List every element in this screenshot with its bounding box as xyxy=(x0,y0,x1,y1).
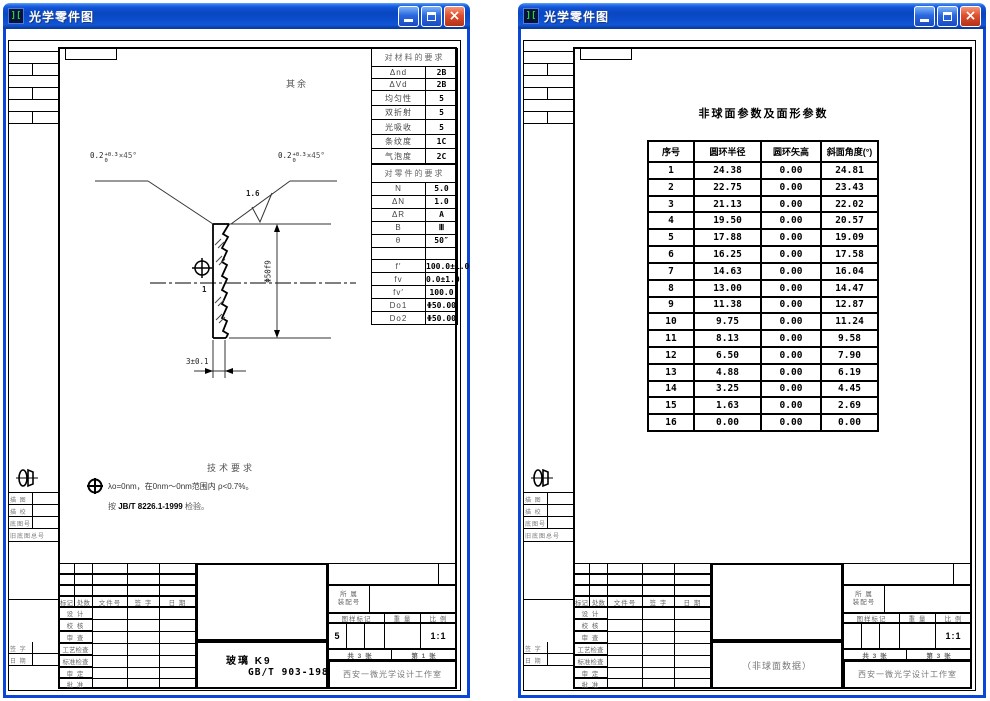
table-title: 对材料的要求 xyxy=(372,49,458,67)
table-cell: 14.63 xyxy=(694,263,761,280)
projection-symbol-icon xyxy=(14,465,40,491)
glass-type: 玻璃 K9 xyxy=(226,652,272,667)
table-row: 911.380.0012.87 xyxy=(648,297,878,314)
tb-row-label: 工艺检查 xyxy=(573,643,608,655)
table-cell: 0.00 xyxy=(761,313,821,330)
table-cell: 5 xyxy=(426,120,458,135)
table-cell: 5 xyxy=(426,91,458,106)
fresnel-serrated-edge xyxy=(222,224,229,338)
tb-header: 日 期 xyxy=(159,596,196,607)
close-button[interactable]: × xyxy=(444,6,465,27)
mark-header: 图样标记 xyxy=(843,613,900,623)
table-cell: 100.0±1.0 xyxy=(426,260,458,273)
table-cell: 光吸收 xyxy=(372,120,426,135)
table-cell: 0.00 xyxy=(761,229,821,246)
part-requirements-table: 对零件的要求 N5.0ΔN1.0ΔRABⅢθ50″ f′100.0±1.0fv0… xyxy=(371,164,458,325)
table-cell: 0.00 xyxy=(761,414,821,431)
tb-header: 日 期 xyxy=(674,596,711,607)
window-controls: × xyxy=(914,6,981,27)
table-cell xyxy=(426,247,458,260)
table-cell: Ⅲ xyxy=(426,221,458,234)
frame-corner-cell xyxy=(65,47,117,60)
table-cell: 13 xyxy=(648,364,694,381)
tb-header: 文件号 xyxy=(92,596,128,607)
tb-header: 标记 xyxy=(58,596,75,607)
tb-header: 处数 xyxy=(74,596,93,607)
margin-label: 日 期 xyxy=(525,656,542,665)
table-cell: 4 xyxy=(648,212,694,229)
table-row: Δnd2B xyxy=(372,67,458,79)
lens-section-drawing xyxy=(66,149,366,419)
surface-finish-icon xyxy=(252,193,272,222)
table-cell: 0.0±1.0 xyxy=(426,273,458,286)
close-icon: × xyxy=(965,9,977,23)
table-cell: 5 xyxy=(648,229,694,246)
table-cell: 12.87 xyxy=(821,297,878,314)
tb-row-label: 审 定 xyxy=(573,667,608,678)
table-cell: 0.00 xyxy=(821,414,878,431)
table-cell: 2C xyxy=(426,149,458,164)
table-row: N5.0 xyxy=(372,183,458,196)
inspection-standard: JB/T 8226.1-1999 xyxy=(118,502,183,511)
table-cell: 0.00 xyxy=(761,280,821,297)
table-cell: Δnd xyxy=(372,67,426,79)
margin-label: 描 图 xyxy=(10,495,27,504)
table-cell: 2B xyxy=(426,79,458,91)
window-optical-drawing: ][ 光学零件图 × xyxy=(3,3,470,698)
maximize-icon xyxy=(427,12,436,21)
position-symbol-icon xyxy=(86,477,104,495)
table-cell: 0.00 xyxy=(761,263,821,280)
table-cell: 1 xyxy=(648,162,694,179)
table-cell: fv xyxy=(372,273,426,286)
table-row: Do2Φ50.00 xyxy=(372,312,458,325)
table-cell: 19.50 xyxy=(694,212,761,229)
table-cell: A xyxy=(426,208,458,221)
data-note-cell: （非球面数据） xyxy=(711,641,843,689)
table-row: 109.750.0011.24 xyxy=(648,313,878,330)
table-cell: B xyxy=(372,221,426,234)
table-cell: 12 xyxy=(648,347,694,364)
table-row: 气泡度2C xyxy=(372,149,458,164)
tb-row-label: 设 计 xyxy=(573,607,608,619)
table-cell: 0.00 xyxy=(761,246,821,263)
table-cell: 0.00 xyxy=(761,179,821,196)
table-row: 151.630.002.69 xyxy=(648,397,878,414)
binding-margin: 描 图 描 校 底图号 旧底图总号 签 字 日 期 xyxy=(523,40,573,691)
tech-requirements-line1: λo=0nm，在0nm～0nm范围内 ρ<0.7%。 xyxy=(108,481,254,492)
drawing-sheet-1: 描 图 描 校 底图号 旧底图总号 签 字 日 期 其余 0.2+0.30×45… xyxy=(6,29,467,695)
company-cell: 西安一微光学设计工作室 xyxy=(328,660,457,689)
weight-header: 重 量 xyxy=(899,613,936,623)
mark-value xyxy=(843,623,862,649)
table-row: 813.000.0014.47 xyxy=(648,280,878,297)
tb-header: 处数 xyxy=(589,596,608,607)
tb-row-label: 标准检查 xyxy=(573,655,608,667)
table-cell: 16.04 xyxy=(821,263,878,280)
table-cell: 0.00 xyxy=(761,196,821,213)
margin-label: 旧底图总号 xyxy=(525,531,560,540)
titlebar[interactable]: ][ 光学零件图 × xyxy=(3,3,470,29)
scale-value: 1:1 xyxy=(420,623,457,649)
table-cell: 双折射 xyxy=(372,105,426,120)
table-cell: 24.81 xyxy=(821,162,878,179)
material-cell: 玻璃 K9 GB/T 903-1987 xyxy=(196,641,328,689)
tb-row-label: 校 核 xyxy=(58,619,93,631)
table-cell: 23.43 xyxy=(821,179,878,196)
close-icon: × xyxy=(449,9,461,23)
mark-value: 5 xyxy=(328,623,347,649)
table-cell: 22.75 xyxy=(694,179,761,196)
scale-value: 1:1 xyxy=(935,623,972,649)
table-row: 419.500.0020.57 xyxy=(648,212,878,229)
scale-header: 比 例 xyxy=(935,613,972,623)
weight-header: 重 量 xyxy=(384,613,421,623)
datum-label: 1 xyxy=(202,285,207,294)
tech-requirements-title: 技术要求 xyxy=(156,461,306,474)
aspheric-parameter-table: 序号 圆环半径 圆环矢高 斜面角度(°) 124.380.0024.81222.… xyxy=(647,140,879,432)
table-row: 均匀性5 xyxy=(372,91,458,106)
tb-header: 标记 xyxy=(573,596,590,607)
column-header: 斜面角度(°) xyxy=(821,141,878,162)
table-cell: 16.25 xyxy=(694,246,761,263)
table-cell: 11.38 xyxy=(694,297,761,314)
margin-label: 描 校 xyxy=(10,507,27,516)
table-row: 134.880.006.19 xyxy=(648,364,878,381)
table-cell: 4.88 xyxy=(694,364,761,381)
table-cell: 11 xyxy=(648,330,694,347)
table-cell: 13.00 xyxy=(694,280,761,297)
table-cell: 2.69 xyxy=(821,397,878,414)
table-header-row: 序号 圆环半径 圆环矢高 斜面角度(°) xyxy=(648,141,878,162)
window-title: 光学零件图 xyxy=(29,8,94,25)
projection-symbol-icon xyxy=(529,465,555,491)
table-cell: ΔVd xyxy=(372,79,426,91)
table-row: ΔVd2B xyxy=(372,79,458,91)
table-cell: 24.38 xyxy=(694,162,761,179)
table-cell: 6.19 xyxy=(821,364,878,381)
column-header: 圆环矢高 xyxy=(761,141,821,162)
minimize-icon xyxy=(920,19,929,22)
margin-label: 底图号 xyxy=(525,519,546,528)
table-cell: 0.00 xyxy=(761,330,821,347)
tb-header: 签 字 xyxy=(642,596,675,607)
tech-requirements-line2: 按 JB/T 8226.1-1999 检验。 xyxy=(108,501,209,512)
table-cell: 0.00 xyxy=(761,381,821,398)
table-row: 光吸收5 xyxy=(372,120,458,135)
material-requirements-table: 对材料的要求 Δnd2BΔVd2B均匀性5双折射5光吸收5条纹度1C气泡度2C xyxy=(371,48,458,164)
table-row: 143.250.004.45 xyxy=(648,381,878,398)
drawing-canvas[interactable]: 描 图 描 校 底图号 旧底图总号 签 字 日 期 非球面参数及面形参数 序号 … xyxy=(518,29,986,698)
table-cell: 9.75 xyxy=(694,313,761,330)
minimize-icon xyxy=(404,19,413,22)
table-cell: 均匀性 xyxy=(372,91,426,106)
drawing-sheet-3: 描 图 描 校 底图号 旧底图总号 签 字 日 期 非球面参数及面形参数 序号 … xyxy=(521,29,982,695)
tb-row-label: 工艺检查 xyxy=(58,643,93,655)
table-cell: 17.88 xyxy=(694,229,761,246)
table-cell: ΔN xyxy=(372,195,426,208)
table-row: 126.500.007.90 xyxy=(648,347,878,364)
table-row: 124.380.0024.81 xyxy=(648,162,878,179)
table-row: 222.750.0023.43 xyxy=(648,179,878,196)
table-cell: 1.63 xyxy=(694,397,761,414)
table-cell: 50″ xyxy=(426,234,458,247)
margin-label: 底图号 xyxy=(10,519,31,528)
table-cell: 0.00 xyxy=(761,364,821,381)
tb-row-label: 批 准 xyxy=(573,678,608,689)
table-cell: 4.45 xyxy=(821,381,878,398)
table-row: 双折射5 xyxy=(372,105,458,120)
margin-label: 日 期 xyxy=(10,656,27,665)
sheet-total: 共 3 张 xyxy=(328,649,392,660)
table-cell: 6.50 xyxy=(694,347,761,364)
table-cell: Φ50.00 xyxy=(426,299,458,312)
titlebar[interactable]: ][ 光学零件图 × xyxy=(518,3,986,29)
table-cell: 1C xyxy=(426,134,458,149)
table-row: 118.130.009.58 xyxy=(648,330,878,347)
table-cell: Do1 xyxy=(372,299,426,312)
margin-label: 签 字 xyxy=(525,644,542,653)
table-cell: 21.13 xyxy=(694,196,761,213)
table-row: ΔRA xyxy=(372,208,458,221)
maximize-button[interactable] xyxy=(937,6,958,27)
table-cell: 1.0 xyxy=(426,195,458,208)
margin-label: 旧底图总号 xyxy=(10,531,45,540)
table-cell: 9 xyxy=(648,297,694,314)
tb-row-label: 设 计 xyxy=(58,607,93,619)
maximize-button[interactable] xyxy=(421,6,442,27)
table-cell: 8 xyxy=(648,280,694,297)
binding-margin: 描 图 描 校 底图号 旧底图总号 签 字 日 期 xyxy=(8,40,58,691)
table-cell: 0.00 xyxy=(761,347,821,364)
table-cell: Do2 xyxy=(372,312,426,325)
table-row: Do1Φ50.00 xyxy=(372,299,458,312)
diameter-dimension: Φ50f9 xyxy=(264,250,273,294)
aspheric-table-title: 非球面参数及面形参数 xyxy=(641,105,886,121)
table-cell: N xyxy=(372,183,426,196)
table-cell: 条纹度 xyxy=(372,134,426,149)
table-cell: 0.00 xyxy=(761,212,821,229)
table-row xyxy=(372,247,458,260)
scale-header: 比 例 xyxy=(420,613,457,623)
maximize-icon xyxy=(943,12,952,21)
sheet-number: 第 1 张 xyxy=(391,649,457,660)
table-row: f′100.0±1.0 xyxy=(372,260,458,273)
column-header: 圆环半径 xyxy=(694,141,761,162)
table-cell: 0.00 xyxy=(761,297,821,314)
tb-row-label: 审 查 xyxy=(58,631,93,643)
table-cell: 6 xyxy=(648,246,694,263)
table-cell: ΔR xyxy=(372,208,426,221)
table-row: 714.630.0016.04 xyxy=(648,263,878,280)
table-cell: 7 xyxy=(648,263,694,280)
table-cell: 5.0 xyxy=(426,183,458,196)
title-block: 标记 处数 文件号 签 字 日 期 设 计 校 核 审 查 工艺检查 标准检查 … xyxy=(58,563,457,689)
mark-header: 图样标记 xyxy=(328,613,385,623)
app-icon[interactable]: ][ xyxy=(523,8,539,24)
assembly-cell: 所 属装配号 xyxy=(328,585,370,613)
glass-standard: GB/T 903-1987 xyxy=(248,667,328,678)
table-cell: 5 xyxy=(426,105,458,120)
frame-corner-cell xyxy=(580,47,632,60)
tb-row-label: 校 核 xyxy=(573,619,608,631)
table-row: BⅢ xyxy=(372,221,458,234)
table-row: fv0.0±1.0 xyxy=(372,273,458,286)
minimize-button[interactable] xyxy=(914,6,935,27)
window-aspheric-data: ][ 光学零件图 × xyxy=(518,3,986,698)
tb-header: 文件号 xyxy=(607,596,643,607)
table-title: 对零件的要求 xyxy=(372,165,458,183)
table-cell: θ xyxy=(372,234,426,247)
tb-row-label: 审 定 xyxy=(58,667,93,678)
drawing-canvas[interactable]: 描 图 描 校 底图号 旧底图总号 签 字 日 期 其余 0.2+0.30×45… xyxy=(3,29,470,698)
table-cell: fv′ xyxy=(372,286,426,299)
table-cell: 7.90 xyxy=(821,347,878,364)
table-cell: 8.13 xyxy=(694,330,761,347)
thickness-dimension: 3±0.1 xyxy=(186,357,209,366)
app-icon[interactable]: ][ xyxy=(8,8,24,24)
table-cell: 2 xyxy=(648,179,694,196)
table-cell: Φ50.00 xyxy=(426,312,458,325)
table-row: ΔN1.0 xyxy=(372,195,458,208)
table-row: 160.000.000.00 xyxy=(648,414,878,431)
minimize-button[interactable] xyxy=(398,6,419,27)
table-cell: 17.58 xyxy=(821,246,878,263)
table-cell: 9.58 xyxy=(821,330,878,347)
title-block: 标记 处数 文件号 签 字 日 期 设 计 校 核 审 查 工艺检查 标准检查 … xyxy=(573,563,972,689)
table-cell: 10 xyxy=(648,313,694,330)
tb-row-label: 审 查 xyxy=(573,631,608,643)
close-button[interactable]: × xyxy=(960,6,981,27)
table-cell: 15 xyxy=(648,397,694,414)
table-cell xyxy=(372,247,426,260)
table-cell: 19.09 xyxy=(821,229,878,246)
sheet-total: 共 3 张 xyxy=(843,649,907,660)
column-header: 序号 xyxy=(648,141,694,162)
assembly-cell: 所 属装配号 xyxy=(843,585,885,613)
table-cell: 3 xyxy=(648,196,694,213)
table-row: 517.880.0019.09 xyxy=(648,229,878,246)
tb-row-label: 批 准 xyxy=(58,678,93,689)
table-row: 321.130.0022.02 xyxy=(648,196,878,213)
table-row: θ50″ xyxy=(372,234,458,247)
table-row: 616.250.0017.58 xyxy=(648,246,878,263)
table-cell: 14.47 xyxy=(821,280,878,297)
misc-note: 其余 xyxy=(286,77,308,90)
margin-label: 签 字 xyxy=(10,644,27,653)
table-cell: 16 xyxy=(648,414,694,431)
table-cell: 0.00 xyxy=(761,162,821,179)
table-cell: 气泡度 xyxy=(372,149,426,164)
table-cell: 11.24 xyxy=(821,313,878,330)
window-controls: × xyxy=(398,6,465,27)
table-cell: 0.00 xyxy=(761,397,821,414)
tb-row-label: 标准检查 xyxy=(58,655,93,667)
table-cell: 20.57 xyxy=(821,212,878,229)
table-cell: 14 xyxy=(648,381,694,398)
table-cell: 3.25 xyxy=(694,381,761,398)
margin-label: 描 图 xyxy=(525,495,542,504)
table-cell: 2B xyxy=(426,67,458,79)
table-row: fv′100.0 xyxy=(372,286,458,299)
margin-label: 描 校 xyxy=(525,507,542,516)
window-title: 光学零件图 xyxy=(544,8,609,25)
table-cell: 22.02 xyxy=(821,196,878,213)
datum-target-icon xyxy=(192,258,212,278)
sheet-number: 第 3 张 xyxy=(906,649,972,660)
table-cell: 100.0 xyxy=(426,286,458,299)
table-row: 条纹度1C xyxy=(372,134,458,149)
table-cell: f′ xyxy=(372,260,426,273)
company-cell: 西安一微光学设计工作室 xyxy=(843,660,972,689)
tb-header: 签 字 xyxy=(127,596,160,607)
table-cell: 0.00 xyxy=(694,414,761,431)
